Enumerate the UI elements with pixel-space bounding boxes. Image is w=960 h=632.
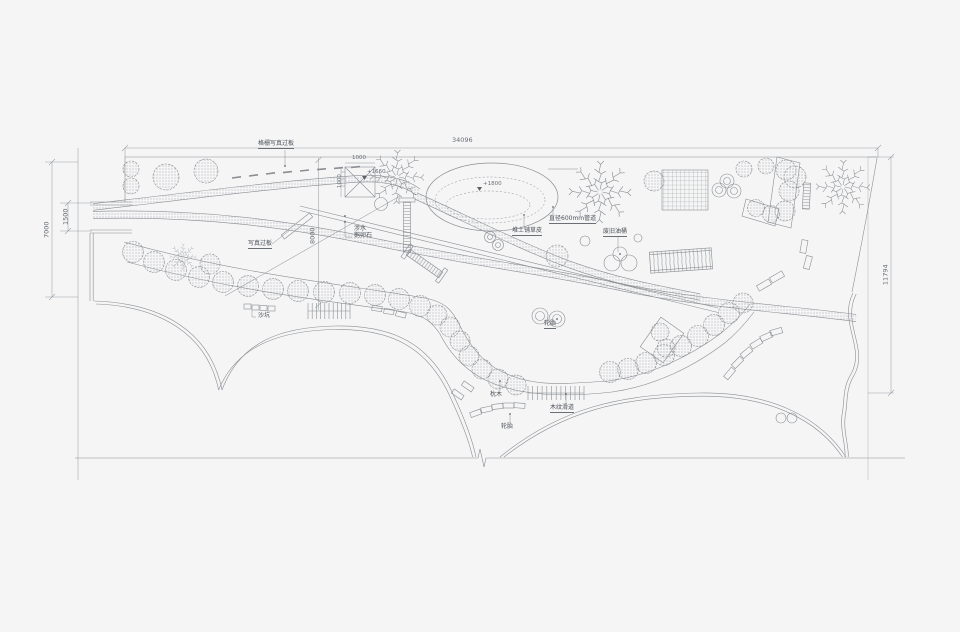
label-tires-bottom: 轮胎 bbox=[501, 424, 513, 431]
label-oil-drums: 废旧油桶 bbox=[603, 229, 627, 237]
elevation-mound: +1800 bbox=[483, 181, 502, 187]
label-pipe: 直径600mm管道 bbox=[549, 216, 596, 224]
label-grille-board: 格栅写真过板 bbox=[258, 141, 294, 149]
dim-path-offset: 8000 bbox=[309, 219, 316, 253]
dim-right-height: 11794 bbox=[882, 258, 889, 292]
oil-drums bbox=[604, 237, 637, 271]
break-line bbox=[473, 449, 487, 467]
label-sleepers: 枕木 bbox=[490, 392, 502, 399]
label-tires-mid: 轮胎 bbox=[544, 321, 556, 329]
small-circle bbox=[580, 236, 590, 246]
label-sand-pit: 沙坑 bbox=[258, 313, 270, 320]
dim-site-width: 34096 bbox=[452, 137, 473, 144]
label-pebbles: 鹅卵石 bbox=[354, 233, 372, 240]
label-mound-grass: 堆土铺草皮 bbox=[512, 228, 542, 236]
elevation-platform: +1660 bbox=[367, 169, 386, 175]
dim-pavilion-width: 1000 bbox=[352, 155, 366, 161]
label-wood-slide: 木纹滑道 bbox=[550, 405, 574, 413]
site-plan-drawing bbox=[0, 0, 960, 632]
label-photo-board: 写真过板 bbox=[248, 241, 272, 249]
lawn-arcs bbox=[94, 301, 846, 457]
dim-left-height: 7000 bbox=[43, 213, 50, 247]
stepping-stones bbox=[724, 327, 783, 379]
cad-canvas: 34096 7000 1500 11794 8000 1000 1000 +16… bbox=[0, 0, 960, 632]
fence-swing bbox=[308, 303, 350, 319]
dim-pavilion-depth: 1000 bbox=[337, 164, 343, 198]
elevation-marker-mound bbox=[477, 187, 482, 191]
climbing-net bbox=[662, 170, 708, 210]
dim-entrance-width: 1500 bbox=[62, 200, 69, 234]
wood-bridge bbox=[649, 248, 712, 273]
